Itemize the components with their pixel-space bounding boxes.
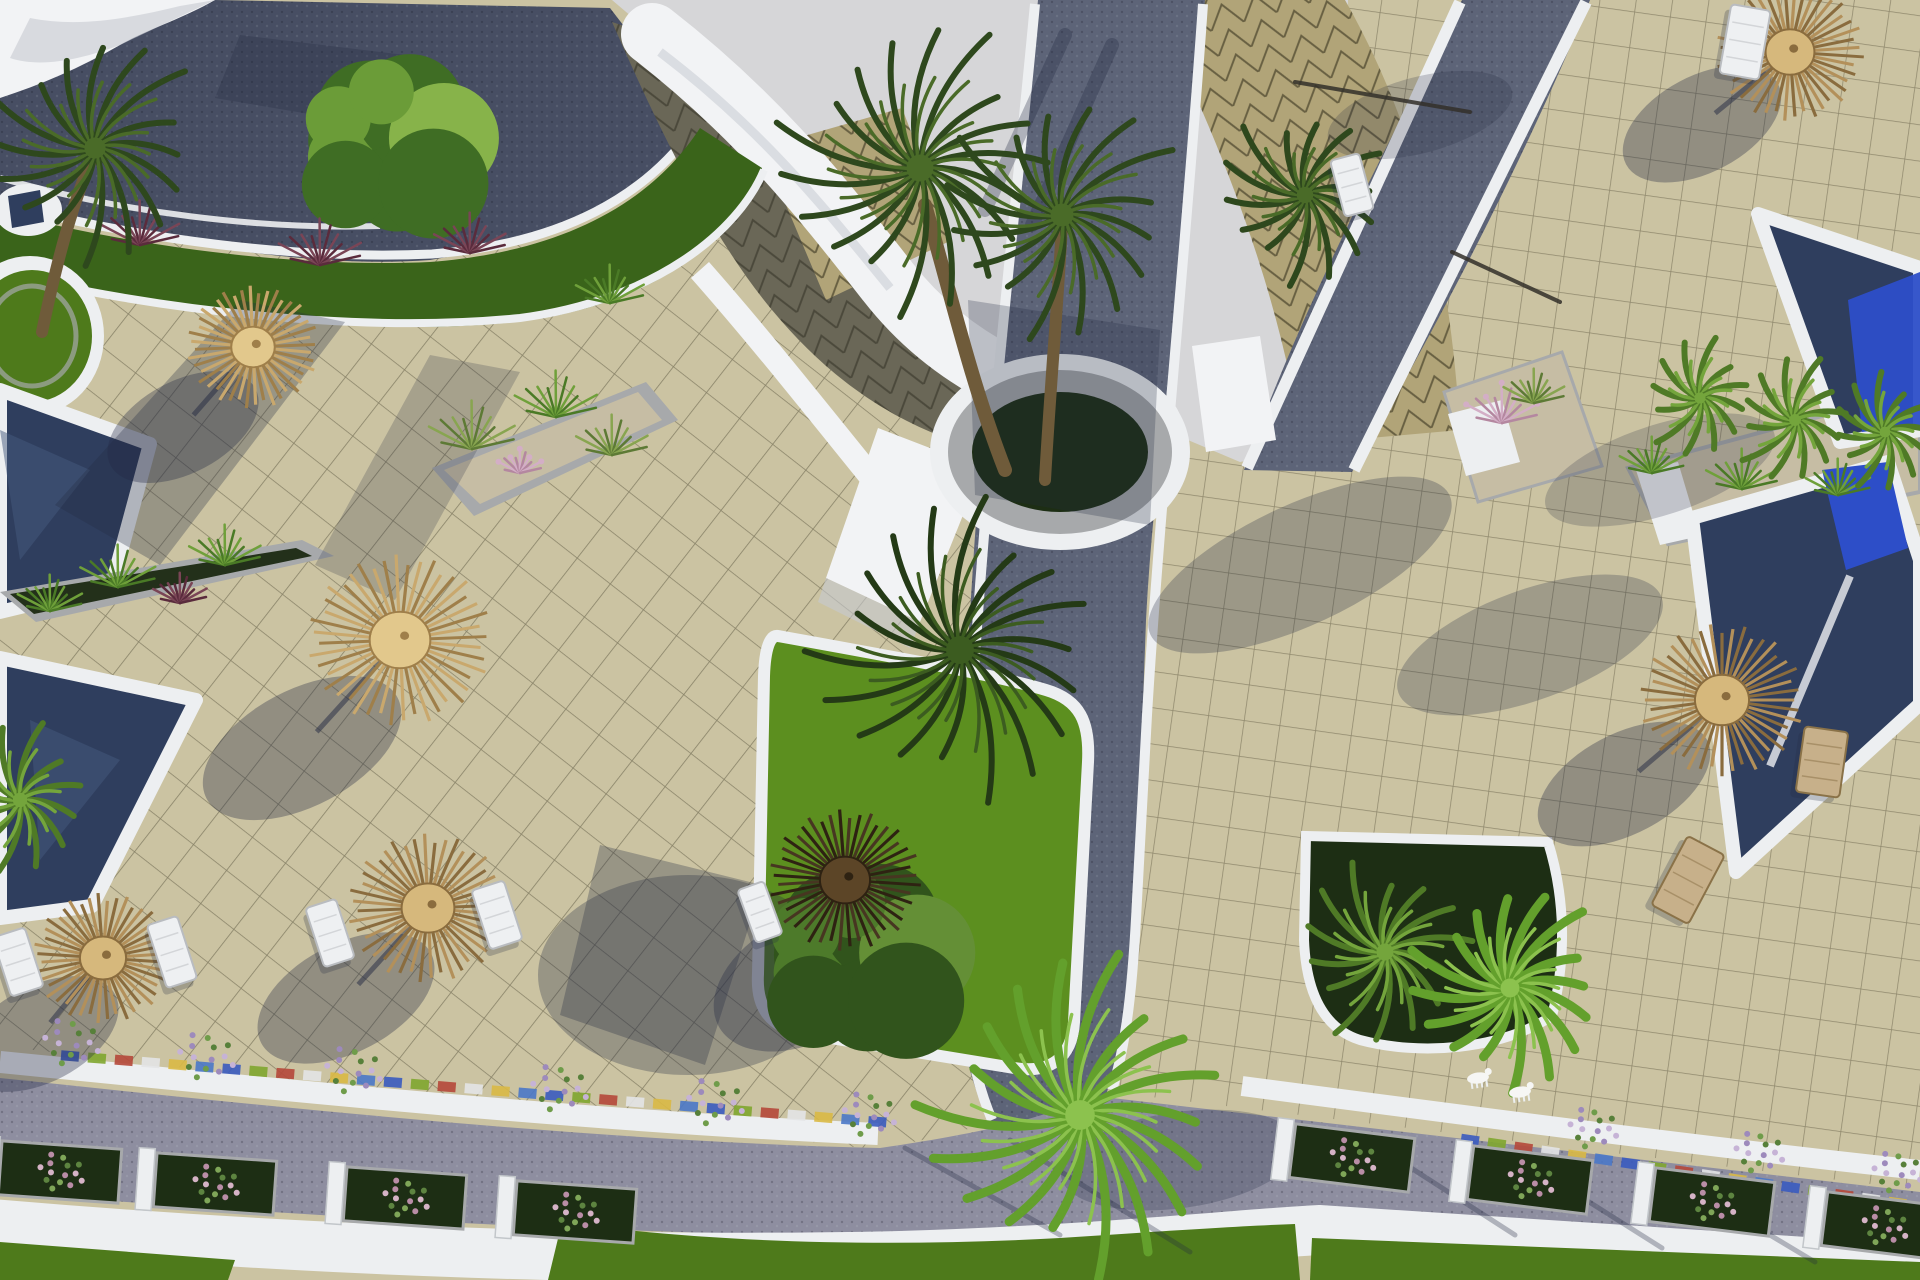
flower bbox=[1579, 1126, 1585, 1132]
tree-foliage bbox=[767, 956, 859, 1048]
flower bbox=[725, 1115, 731, 1121]
planter-box-bed bbox=[343, 1167, 466, 1229]
palm-crown-center bbox=[1880, 427, 1891, 438]
flower bbox=[731, 1100, 737, 1106]
flower-tip bbox=[495, 459, 501, 465]
flower-tip bbox=[526, 454, 532, 460]
flower bbox=[850, 1121, 856, 1127]
flower bbox=[699, 1078, 705, 1084]
flower bbox=[1601, 1139, 1607, 1145]
umbrella-pole-top bbox=[428, 900, 437, 908]
mosaic-tile bbox=[276, 1068, 295, 1079]
palm-crown-center bbox=[84, 137, 105, 158]
flower bbox=[556, 1098, 562, 1104]
shadow-band bbox=[968, 300, 1160, 525]
mosaic-tile bbox=[599, 1094, 618, 1105]
flower bbox=[1763, 1142, 1769, 1148]
flower bbox=[337, 1046, 343, 1052]
planter-box-divider bbox=[135, 1148, 155, 1211]
flower bbox=[720, 1090, 726, 1096]
flower bbox=[1779, 1157, 1785, 1163]
flower bbox=[1595, 1128, 1601, 1134]
flower bbox=[542, 1075, 548, 1081]
flower-tip bbox=[517, 446, 523, 452]
flower bbox=[87, 1040, 93, 1046]
umbrella-pole-top bbox=[1722, 692, 1731, 700]
palm-crown-center bbox=[1694, 392, 1705, 403]
mosaic-tile bbox=[814, 1112, 833, 1123]
flower bbox=[1591, 1109, 1597, 1115]
flower bbox=[1597, 1118, 1603, 1124]
flower bbox=[356, 1071, 362, 1077]
tree-foliage bbox=[302, 141, 390, 229]
mosaic-tile bbox=[249, 1066, 268, 1077]
statue-leg bbox=[1528, 1094, 1529, 1101]
flower bbox=[1575, 1135, 1581, 1141]
tree-foliage bbox=[378, 129, 488, 239]
flower bbox=[333, 1078, 339, 1084]
planter-box-bed bbox=[513, 1181, 636, 1243]
mosaic-tile bbox=[680, 1101, 699, 1112]
flower bbox=[81, 1055, 87, 1061]
planter-box bbox=[135, 1148, 277, 1219]
flower bbox=[855, 1112, 861, 1118]
flower bbox=[59, 1060, 65, 1066]
flower-tip bbox=[1499, 380, 1505, 386]
umbrella-pole-top bbox=[844, 872, 853, 880]
mosaic-tile bbox=[518, 1088, 537, 1099]
flower bbox=[871, 1114, 877, 1120]
umbrella-pole-top bbox=[252, 340, 261, 348]
flower bbox=[70, 1021, 76, 1027]
mosaic-tile bbox=[437, 1081, 456, 1092]
flower bbox=[189, 1043, 195, 1049]
palm-crown-center bbox=[1789, 414, 1801, 426]
flower bbox=[90, 1028, 96, 1034]
flower bbox=[358, 1058, 364, 1064]
flower bbox=[583, 1094, 589, 1100]
mosaic-tile bbox=[787, 1109, 806, 1120]
flower bbox=[698, 1089, 704, 1095]
flower bbox=[575, 1086, 581, 1092]
flower bbox=[1578, 1107, 1584, 1113]
flower bbox=[703, 1120, 709, 1126]
flower bbox=[216, 1069, 222, 1075]
mosaic-tile bbox=[384, 1077, 403, 1088]
flower bbox=[543, 1064, 549, 1070]
mosaic-tile bbox=[626, 1096, 645, 1107]
flower bbox=[225, 1042, 231, 1048]
flower bbox=[352, 1049, 358, 1055]
flower bbox=[842, 1107, 848, 1113]
flower bbox=[734, 1088, 740, 1094]
flower bbox=[194, 1074, 200, 1080]
flower bbox=[230, 1062, 236, 1068]
statue-leg bbox=[1486, 1080, 1487, 1087]
flower bbox=[873, 1103, 879, 1109]
flower bbox=[51, 1050, 57, 1056]
flower bbox=[177, 1049, 183, 1055]
flower bbox=[209, 1057, 215, 1063]
mosaic-tile bbox=[303, 1070, 322, 1081]
flower bbox=[1767, 1163, 1773, 1169]
flower bbox=[558, 1067, 564, 1073]
flower bbox=[530, 1081, 536, 1087]
flower bbox=[544, 1086, 550, 1092]
mosaic-tile bbox=[491, 1085, 510, 1096]
palm-crown-center bbox=[13, 793, 27, 807]
flower bbox=[56, 1040, 62, 1046]
flower bbox=[336, 1057, 342, 1063]
flower bbox=[1775, 1140, 1781, 1146]
flower bbox=[712, 1112, 718, 1118]
flower bbox=[686, 1095, 692, 1101]
flower bbox=[74, 1043, 80, 1049]
flower bbox=[1568, 1121, 1574, 1127]
flower bbox=[1879, 1179, 1885, 1185]
flower-tip bbox=[1463, 401, 1469, 407]
flower bbox=[222, 1054, 228, 1060]
flower bbox=[95, 1048, 101, 1054]
flower bbox=[1734, 1145, 1740, 1151]
planter-box bbox=[325, 1162, 467, 1233]
flower bbox=[186, 1064, 192, 1070]
mosaic-tile bbox=[141, 1057, 160, 1068]
tree-foliage bbox=[349, 59, 414, 124]
flower bbox=[853, 1102, 859, 1108]
flower bbox=[76, 1030, 82, 1036]
flower bbox=[1748, 1167, 1754, 1173]
flower bbox=[341, 1088, 347, 1094]
umbrella-pole-top bbox=[1789, 44, 1798, 52]
palm-crown-center bbox=[946, 636, 974, 664]
flower bbox=[1882, 1160, 1888, 1166]
aerial-resort-render: Aerial 3D architectural rendering of a r… bbox=[0, 0, 1920, 1280]
flower bbox=[1741, 1159, 1747, 1165]
flower-tip bbox=[507, 454, 513, 460]
flower bbox=[1609, 1116, 1615, 1122]
flower bbox=[203, 1066, 209, 1072]
planter-box-bed bbox=[0, 1141, 122, 1203]
umbrella-hub bbox=[1696, 676, 1748, 725]
flower bbox=[569, 1101, 575, 1107]
flower bbox=[68, 1052, 74, 1058]
flower bbox=[377, 1076, 383, 1082]
flower bbox=[547, 1106, 553, 1112]
flower bbox=[878, 1126, 884, 1132]
flower bbox=[1895, 1153, 1901, 1159]
flower bbox=[324, 1063, 330, 1069]
palm-crown-center bbox=[1050, 203, 1073, 226]
sun-lounger bbox=[1790, 726, 1849, 804]
flower bbox=[1578, 1116, 1584, 1122]
mosaic-tile bbox=[760, 1107, 779, 1118]
flower bbox=[211, 1044, 217, 1050]
flower-tip bbox=[538, 458, 544, 464]
flower bbox=[739, 1108, 745, 1114]
flower bbox=[1613, 1133, 1619, 1139]
flower bbox=[857, 1131, 863, 1137]
flower-tip bbox=[1483, 394, 1489, 400]
flower bbox=[54, 1029, 60, 1035]
flower bbox=[1886, 1187, 1892, 1193]
flower bbox=[1872, 1165, 1878, 1171]
umbrella-hub bbox=[402, 884, 453, 932]
flower bbox=[562, 1089, 568, 1095]
palm-crown-center bbox=[1501, 979, 1520, 998]
flower bbox=[1901, 1162, 1907, 1168]
flower bbox=[190, 1032, 196, 1038]
flower bbox=[1756, 1160, 1762, 1166]
tree-foliage bbox=[848, 943, 964, 1059]
flower bbox=[55, 1018, 61, 1024]
planter-box-divider bbox=[325, 1162, 345, 1225]
palm-crown-center bbox=[1065, 1100, 1095, 1130]
umbrella-hub bbox=[821, 857, 870, 902]
mosaic-tile bbox=[464, 1083, 483, 1094]
flower bbox=[1582, 1143, 1588, 1149]
palm-crown-center bbox=[907, 155, 934, 182]
flower bbox=[369, 1068, 375, 1074]
mosaic-tile bbox=[168, 1059, 187, 1070]
flower bbox=[539, 1096, 545, 1102]
mosaic-tile bbox=[410, 1079, 429, 1090]
mosaic-tile bbox=[114, 1055, 133, 1066]
flower bbox=[350, 1080, 356, 1086]
umbrella-pole-top bbox=[102, 951, 111, 959]
flower bbox=[1883, 1170, 1889, 1176]
flower bbox=[578, 1074, 584, 1080]
mosaic-tile bbox=[330, 1072, 349, 1083]
flower bbox=[338, 1068, 344, 1074]
flower bbox=[1745, 1150, 1751, 1156]
flower bbox=[1882, 1151, 1888, 1157]
flower bbox=[1913, 1160, 1919, 1166]
flower bbox=[42, 1035, 48, 1041]
flower bbox=[866, 1123, 872, 1129]
flower bbox=[695, 1110, 701, 1116]
flower bbox=[205, 1035, 211, 1041]
flower bbox=[1590, 1136, 1596, 1142]
flower bbox=[868, 1094, 874, 1100]
flower bbox=[886, 1101, 892, 1107]
flower bbox=[714, 1081, 720, 1087]
flower bbox=[363, 1083, 369, 1089]
umbrella-pole-top bbox=[400, 632, 409, 640]
palm-crown-center bbox=[1297, 187, 1314, 204]
planter-box-bed bbox=[153, 1153, 276, 1215]
flower bbox=[853, 1092, 859, 1098]
flower bbox=[1910, 1169, 1916, 1175]
flower bbox=[372, 1056, 378, 1062]
render-canvas bbox=[0, 0, 1920, 1280]
palm-crown-center bbox=[1376, 943, 1393, 960]
flower bbox=[1772, 1149, 1778, 1155]
mosaic-tile bbox=[653, 1099, 672, 1110]
umbrella-hub bbox=[371, 613, 430, 668]
planter-box-divider bbox=[495, 1176, 515, 1239]
flower bbox=[1744, 1140, 1750, 1146]
flower bbox=[1899, 1172, 1905, 1178]
flower bbox=[883, 1111, 889, 1117]
flower bbox=[1757, 1133, 1763, 1139]
flower bbox=[1744, 1131, 1750, 1137]
flower bbox=[718, 1103, 724, 1109]
flower bbox=[1606, 1125, 1612, 1131]
flower bbox=[1761, 1152, 1767, 1158]
planter-box bbox=[495, 1176, 637, 1247]
flower bbox=[891, 1119, 897, 1125]
flower bbox=[1894, 1180, 1900, 1186]
flower bbox=[700, 1100, 706, 1106]
flower bbox=[564, 1076, 570, 1082]
flower bbox=[1905, 1183, 1911, 1189]
flower bbox=[191, 1054, 197, 1060]
